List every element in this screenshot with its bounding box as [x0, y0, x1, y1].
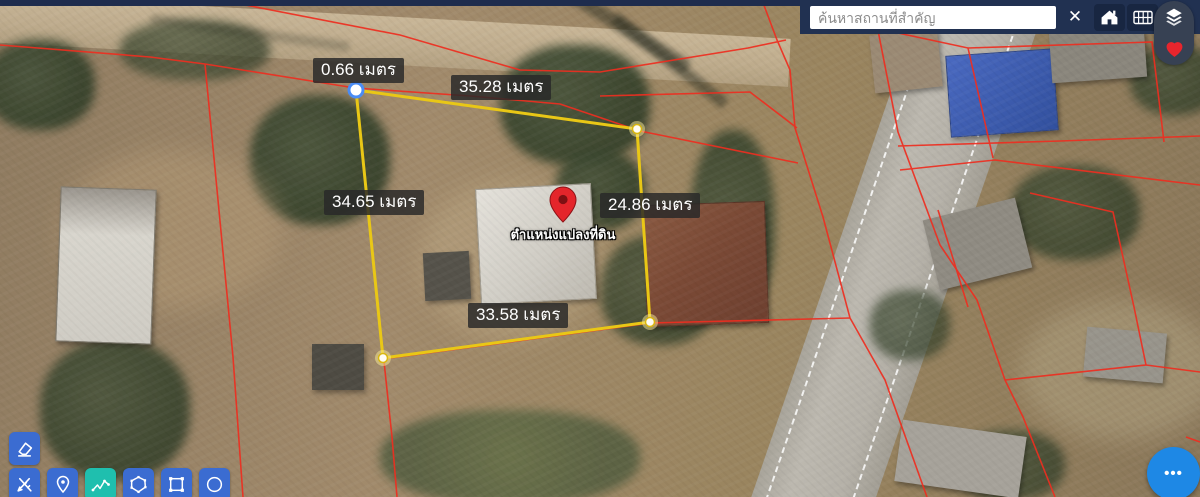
- parcel-boundaries-layer: [0, 0, 1200, 497]
- parcel-line: [968, 48, 993, 158]
- map-app-window: 0.66 เมตร 35.28 เมตร 34.65 เมตร 24.86 เม…: [0, 0, 1200, 497]
- pin-caption: ตำแหน่งแปลงที่ดิน: [495, 224, 631, 245]
- more-options-fab[interactable]: •••: [1147, 447, 1200, 497]
- polyline-measure-icon: [91, 476, 111, 494]
- parcel-line: [1005, 365, 1200, 380]
- measure-label-right: 24.86 เมตร: [600, 193, 700, 218]
- vertex-handle[interactable]: [642, 314, 658, 330]
- search-input[interactable]: [810, 6, 1056, 29]
- layers-icon: [1164, 7, 1184, 27]
- measure-label-top: 35.28 เมตร: [451, 75, 551, 100]
- parcel-line: [884, 30, 1164, 142]
- home-button[interactable]: [1094, 4, 1125, 31]
- heart-icon: [1165, 40, 1184, 58]
- location-pin-icon[interactable]: [550, 187, 576, 222]
- pin-outline-icon: [54, 475, 72, 494]
- eraser-icon: [15, 439, 34, 458]
- eraser-tool-button[interactable]: [9, 432, 40, 465]
- measure-label-offset: 0.66 เมตร: [313, 58, 404, 83]
- map-vector-overlay: [0, 0, 1200, 497]
- parcel-line: [1186, 437, 1200, 442]
- parcel-line: [383, 352, 397, 497]
- layers-button[interactable]: [1154, 1, 1194, 33]
- parcel-line: [600, 92, 797, 128]
- polygon-icon: [129, 475, 148, 494]
- measure-label-bottom: 33.58 เมตร: [468, 303, 568, 328]
- vertex-handle[interactable]: [375, 350, 391, 366]
- parcel-line: [205, 64, 243, 497]
- grid-icon: [1133, 9, 1153, 26]
- draw-polygon-tool-button[interactable]: [123, 468, 154, 497]
- draw-tools-button[interactable]: [9, 468, 40, 497]
- measure-label-left: 34.65 เมตร: [324, 190, 424, 215]
- parcel-line: [762, 0, 927, 497]
- circle-icon: [205, 475, 224, 494]
- close-icon[interactable]: ✕: [1062, 4, 1088, 30]
- drop-pin-tool-button[interactable]: [47, 468, 78, 497]
- favorite-button[interactable]: [1154, 33, 1194, 65]
- layers-favorites-pill: [1154, 1, 1194, 65]
- draw-rectangle-tool-button[interactable]: [161, 468, 192, 497]
- vertex-start-handle[interactable]: [349, 83, 363, 97]
- rectangle-icon: [167, 475, 186, 494]
- pencil-ruler-icon: [15, 475, 34, 494]
- vertex-handle[interactable]: [629, 121, 645, 137]
- draw-circle-tool-button[interactable]: [199, 468, 230, 497]
- parcel-line: [1030, 193, 1146, 365]
- parcel-line: [900, 160, 1200, 185]
- parcel-line: [898, 136, 1200, 146]
- measure-line-tool-button[interactable]: [85, 468, 116, 497]
- parcel-line: [383, 318, 850, 359]
- home-icon: [1100, 8, 1119, 27]
- parcel-line: [938, 210, 968, 307]
